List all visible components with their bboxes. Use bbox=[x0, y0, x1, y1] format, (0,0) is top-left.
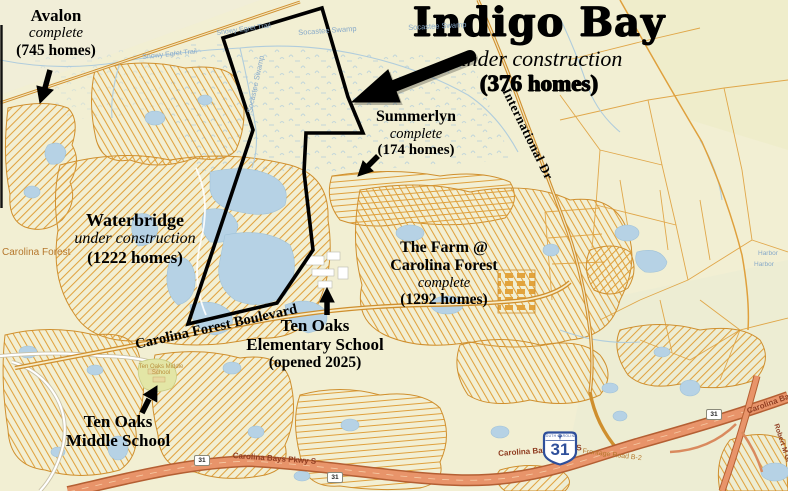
carolina-forest-place-label: Carolina Forest bbox=[2, 248, 70, 259]
summerlyn-homes: (174 homes) bbox=[346, 142, 486, 159]
the-farm-status: complete bbox=[374, 275, 514, 291]
title-status: under construction bbox=[405, 47, 673, 72]
map-screenshot: Indigo Bay under construction (376 homes… bbox=[0, 0, 788, 491]
title-homes: (376 homes) bbox=[405, 71, 673, 97]
middle-line1: Ten Oaks bbox=[43, 412, 193, 431]
summerlyn-name: Summerlyn bbox=[346, 108, 486, 126]
summerlyn-label: Summerlyn complete (174 homes) bbox=[346, 108, 486, 159]
the-farm-name1: The Farm @ bbox=[374, 239, 514, 257]
route-31-marker-2: 31 bbox=[327, 472, 343, 483]
sc-31-shield: SOUTH CAROLINA 31 bbox=[541, 430, 579, 467]
harbor-label-2: Harbor bbox=[754, 261, 774, 268]
shield-number: 31 bbox=[541, 440, 579, 460]
elementary-line2: Elementary School bbox=[240, 335, 390, 354]
the-farm-homes: (1292 homes) bbox=[374, 291, 514, 308]
waterbridge-status: under construction bbox=[55, 230, 215, 248]
harbor-label-1: Harbor bbox=[758, 250, 778, 257]
avalon-status: complete bbox=[0, 25, 112, 42]
route-31-marker-1: 31 bbox=[194, 455, 210, 466]
middle-label: Ten Oaks Middle School bbox=[43, 412, 193, 450]
the-farm-name2: Carolina Forest bbox=[374, 257, 514, 275]
summerlyn-status: complete bbox=[346, 126, 486, 142]
waterbridge-homes: (1222 homes) bbox=[55, 248, 215, 267]
waterbridge-name: Waterbridge bbox=[55, 210, 215, 230]
shield-state-text: SOUTH CAROLINA bbox=[541, 434, 579, 438]
the-farm-label: The Farm @ Carolina Forest complete (129… bbox=[374, 239, 514, 308]
avalon-homes: (745 homes) bbox=[0, 42, 112, 59]
title-block: Indigo Bay under construction (376 homes… bbox=[405, 1, 673, 97]
middle-line2: Middle School bbox=[43, 431, 193, 450]
avalon-label: Avalon complete (745 homes) bbox=[0, 6, 112, 59]
waterbridge-label: Waterbridge under construction (1222 hom… bbox=[55, 210, 215, 267]
avalon-name: Avalon bbox=[0, 6, 112, 25]
elementary-line3: (opened 2025) bbox=[240, 354, 390, 371]
middle-school-site-label: Ten Oaks Middle School bbox=[138, 364, 184, 377]
route-31-marker-3: 31 bbox=[706, 409, 722, 420]
